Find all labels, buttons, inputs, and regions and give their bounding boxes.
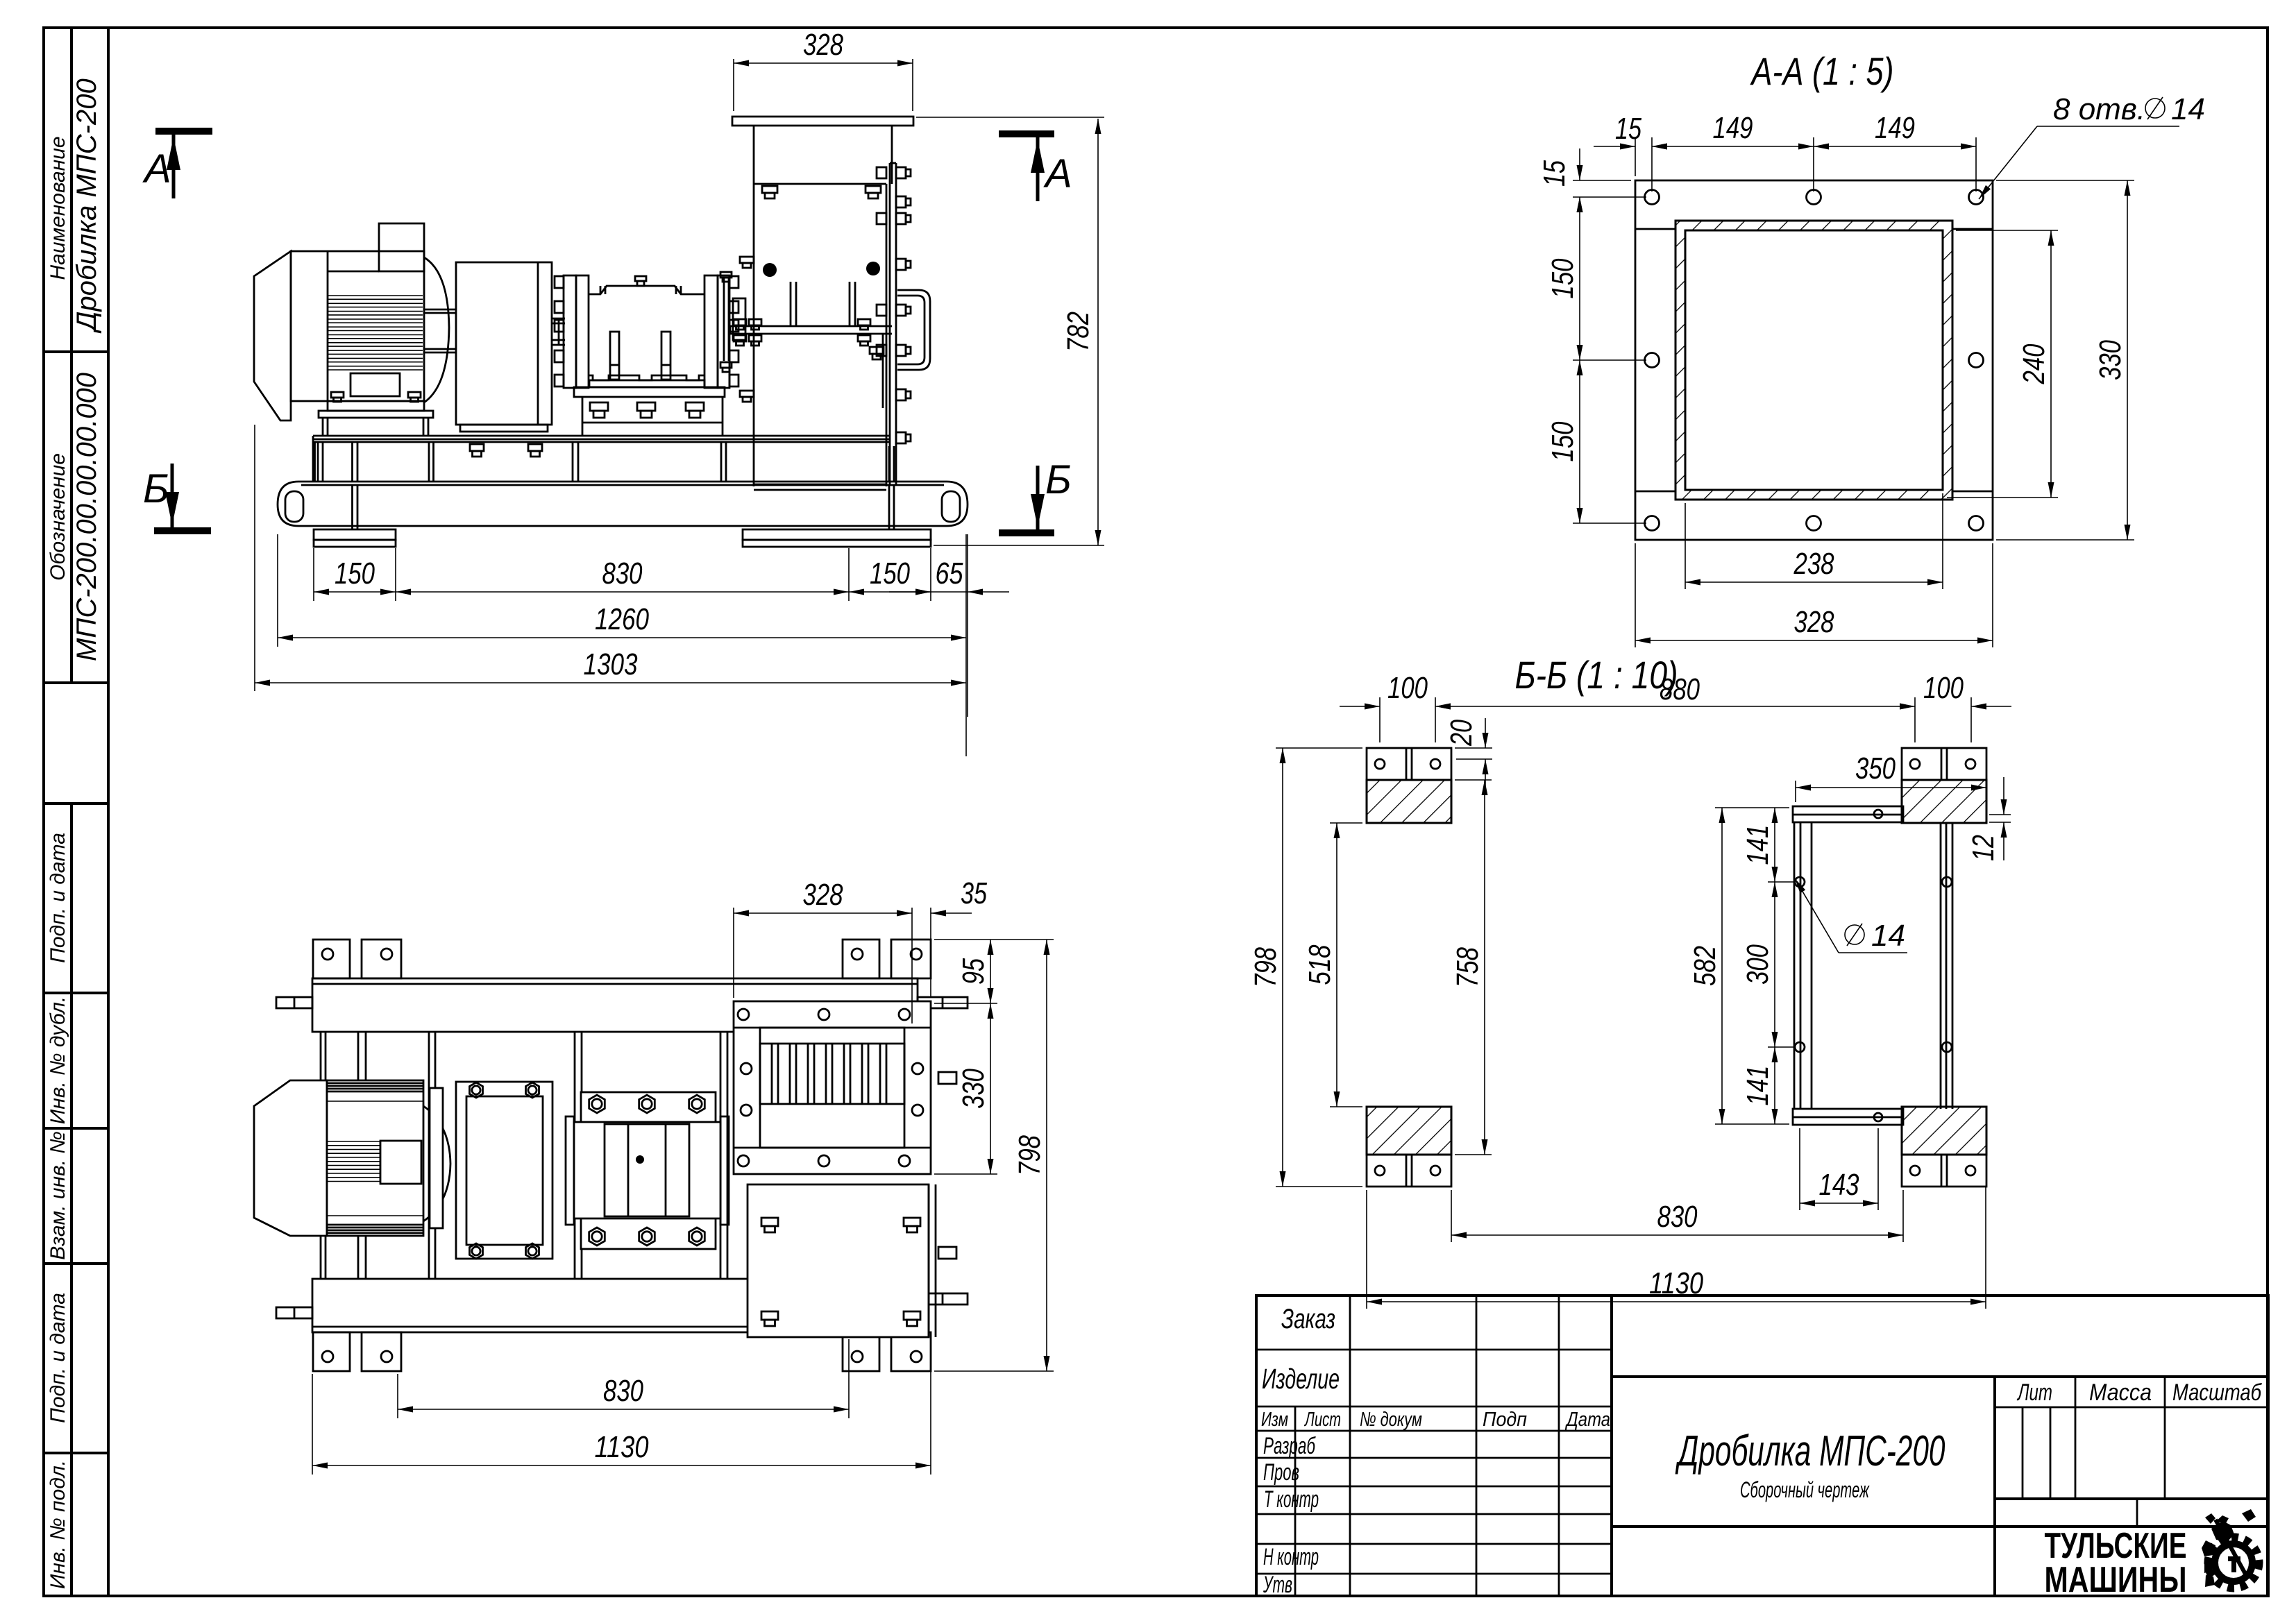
svg-text:Н контр: Н контр — [1263, 1544, 1319, 1570]
svg-text:830: 830 — [1657, 1200, 1698, 1234]
svg-text:880: 880 — [1660, 672, 1700, 706]
svg-text:Инв. № подл.: Инв. № подл. — [47, 1460, 69, 1589]
svg-text:300: 300 — [1741, 944, 1775, 985]
svg-text:350: 350 — [1855, 751, 1896, 785]
svg-text:15: 15 — [1537, 160, 1571, 187]
svg-text:12: 12 — [1966, 835, 2000, 861]
svg-text:14: 14 — [2171, 92, 2205, 126]
svg-text:100: 100 — [1387, 671, 1428, 705]
svg-text:143: 143 — [1819, 1168, 1859, 1202]
svg-text:Подп. и дата: Подп. и дата — [47, 1293, 69, 1423]
svg-text:20: 20 — [1444, 720, 1478, 747]
svg-text:798: 798 — [1249, 947, 1283, 987]
svg-text:582: 582 — [1688, 946, 1722, 986]
svg-text:Б: Б — [1045, 457, 1072, 502]
svg-text:100: 100 — [1923, 671, 1964, 705]
svg-text:328: 328 — [803, 878, 843, 912]
svg-text:Лист: Лист — [1304, 1409, 1341, 1431]
svg-text:330: 330 — [2093, 340, 2127, 380]
svg-text:Изм: Изм — [1261, 1409, 1288, 1431]
svg-text:150: 150 — [1546, 258, 1580, 298]
svg-text:1303: 1303 — [584, 647, 638, 681]
svg-text:149: 149 — [1875, 111, 1915, 145]
svg-text:Пров: Пров — [1263, 1459, 1299, 1486]
svg-text:150: 150 — [335, 556, 375, 590]
svg-text:150: 150 — [870, 556, 910, 590]
svg-text:758: 758 — [1451, 947, 1485, 987]
svg-text:А: А — [142, 146, 171, 192]
svg-text:Дробилка МПС-200: Дробилка МПС-200 — [1675, 1427, 1945, 1475]
svg-text:Взам. инв. №: Взам. инв. № — [47, 1131, 69, 1260]
svg-text:1130: 1130 — [595, 1430, 649, 1464]
svg-text:Масса: Масса — [2089, 1379, 2152, 1406]
svg-text:Утв: Утв — [1263, 1572, 1292, 1598]
svg-text:1130: 1130 — [1649, 1266, 1703, 1300]
svg-text:Изделие: Изделие — [1262, 1363, 1340, 1395]
svg-text:Дата: Дата — [1565, 1409, 1610, 1431]
svg-text:Сборочный чертеж: Сборочный чертеж — [1740, 1477, 1870, 1502]
svg-text:Б-Б (1 : 10): Б-Б (1 : 10) — [1515, 653, 1678, 697]
svg-text:Подп. и дата: Подп. и дата — [47, 833, 69, 963]
svg-text:149: 149 — [1713, 111, 1753, 145]
svg-text:Заказ: Заказ — [1281, 1304, 1335, 1334]
svg-text:330: 330 — [956, 1069, 990, 1109]
svg-text:798: 798 — [1013, 1135, 1047, 1175]
svg-text:15: 15 — [1615, 112, 1641, 146]
svg-text:Т контр: Т контр — [1264, 1486, 1319, 1513]
svg-text:1260: 1260 — [595, 602, 649, 636]
svg-text:14: 14 — [1871, 919, 1905, 953]
svg-text:Инв. № дубл.: Инв. № дубл. — [47, 996, 69, 1125]
svg-text:А: А — [1043, 151, 1072, 196]
svg-text:№ докум: № докум — [1360, 1409, 1422, 1431]
svg-text:328: 328 — [1794, 605, 1834, 639]
svg-text:328: 328 — [803, 28, 843, 62]
svg-text:782: 782 — [1061, 312, 1095, 352]
svg-text:Дробилка МПС-200: Дробилка МПС-200 — [71, 78, 102, 333]
svg-text:830: 830 — [602, 556, 643, 590]
svg-text:Обозначение: Обозначение — [47, 453, 69, 581]
svg-text:Разраб: Разраб — [1263, 1433, 1316, 1459]
svg-text:МПС-200.00.00.00.000: МПС-200.00.00.00.000 — [71, 373, 102, 661]
svg-text:МАШИНЫ: МАШИНЫ — [2045, 1560, 2187, 1600]
svg-text:Масштаб: Масштаб — [2172, 1379, 2263, 1406]
svg-text:95: 95 — [956, 958, 990, 985]
svg-text:518: 518 — [1303, 944, 1337, 985]
svg-text:Подп: Подп — [1483, 1409, 1527, 1431]
svg-text:Б: Б — [143, 466, 169, 511]
svg-text:141: 141 — [1741, 825, 1775, 865]
svg-text:Наименование: Наименование — [47, 136, 69, 280]
svg-text:А-А (1 : 5): А-А (1 : 5) — [1750, 49, 1893, 93]
svg-text:830: 830 — [603, 1374, 643, 1408]
svg-text:141: 141 — [1741, 1066, 1775, 1106]
svg-text:65: 65 — [936, 556, 963, 590]
svg-text:240: 240 — [2017, 343, 2051, 384]
svg-text:150: 150 — [1546, 421, 1580, 461]
svg-text:35: 35 — [961, 876, 987, 910]
svg-text:Лит: Лит — [2017, 1379, 2052, 1406]
svg-text:8 отв.: 8 отв. — [2053, 92, 2145, 126]
svg-text:238: 238 — [1793, 547, 1834, 581]
